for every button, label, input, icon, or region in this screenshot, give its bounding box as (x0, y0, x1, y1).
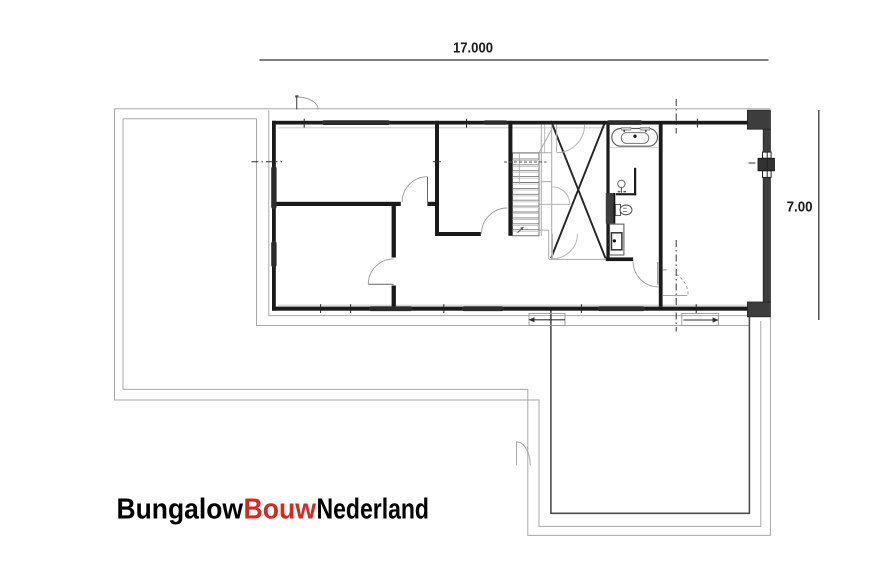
svg-text:Nederland: Nederland (317, 493, 430, 525)
svg-text:Bouw: Bouw (244, 493, 317, 525)
svg-text:7.00: 7.00 (787, 199, 813, 216)
svg-text:17.000: 17.000 (453, 40, 493, 57)
svg-text:Bungalow: Bungalow (117, 493, 244, 525)
